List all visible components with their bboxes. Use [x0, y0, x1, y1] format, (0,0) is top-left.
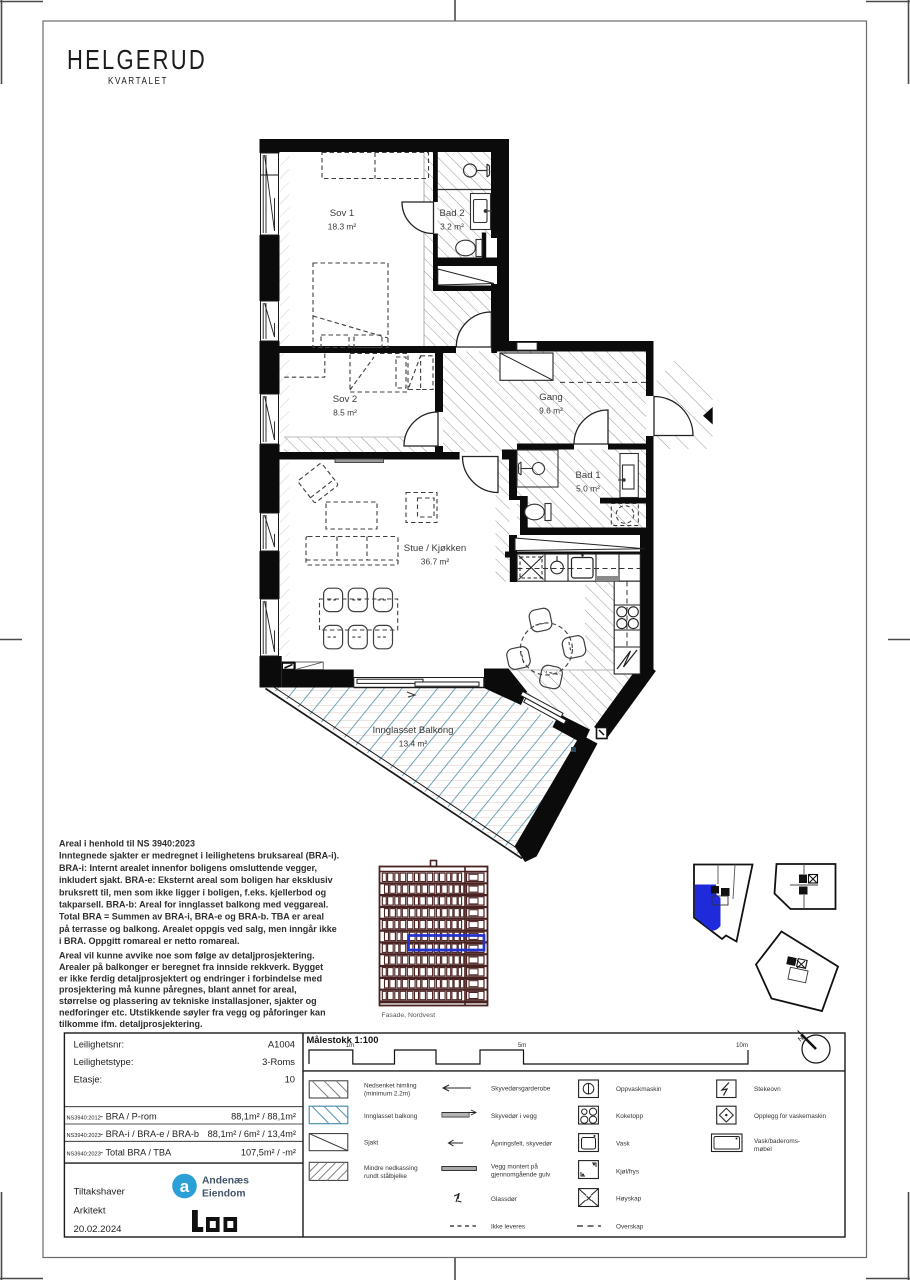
svg-text:takparsell. BRA-b: Areal for i: takparsell. BRA-b: Areal for innglasset …	[59, 900, 328, 910]
svg-text:NS3940:2023: NS3940:2023	[67, 1133, 101, 1139]
svg-text:Målestokk 1:100: Målestokk 1:100	[307, 1034, 379, 1045]
svg-text:10m: 10m	[736, 1042, 748, 1049]
svg-text:Leilighetsnr:: Leilighetsnr:	[74, 1039, 125, 1050]
svg-text:88,1m² / 88,1m²: 88,1m² / 88,1m²	[231, 1112, 296, 1122]
svg-text:Åpningsfelt, skyvedør: Åpningsfelt, skyvedør	[491, 1139, 553, 1148]
svg-text:Sov 2: Sov 2	[333, 394, 358, 405]
svg-text:Stue / Kjøkken: Stue / Kjøkken	[404, 543, 466, 554]
svg-text:Nedsenket himling: Nedsenket himling	[364, 1083, 417, 1090]
svg-text:Bad 2: Bad 2	[439, 208, 464, 219]
svg-text:gjennomgående gulv: gjennomgående gulv	[491, 1171, 551, 1179]
svg-text:Tiltakshaver: Tiltakshaver	[74, 1187, 126, 1198]
svg-text:3-Roms: 3-Roms	[262, 1056, 295, 1067]
svg-text:Innglasset balkong: Innglasset balkong	[364, 1113, 418, 1120]
svg-text:Mindre nedkassing: Mindre nedkassing	[364, 1165, 418, 1172]
svg-text:Ikke leveres: Ikke leveres	[491, 1224, 525, 1231]
svg-text:møbel: møbel	[754, 1146, 772, 1153]
svg-text:HELGERUD: HELGERUD	[67, 44, 207, 75]
svg-text:Oppvaskmaskin: Oppvaskmaskin	[616, 1086, 662, 1093]
svg-text:Skyvedør i vegg: Skyvedør i vegg	[491, 1113, 537, 1120]
svg-text:tilkomme ifm. detaljprosjekter: tilkomme ifm. detaljprosjektering.	[59, 1019, 203, 1029]
svg-text:Gang: Gang	[539, 392, 562, 403]
svg-text:a: a	[180, 1177, 190, 1196]
svg-text:- BRA-i / BRA-e / BRA-b: - BRA-i / BRA-e / BRA-b	[100, 1129, 199, 1139]
svg-text:Høyskap: Høyskap	[616, 1196, 642, 1203]
svg-text:Eiendom: Eiendom	[202, 1189, 245, 1200]
svg-text:nedforinger etc. Utstikkende s: nedforinger etc. Utstikkende søyler fra …	[59, 1008, 326, 1018]
svg-text:Inntegnede sjakter er medregne: Inntegnede sjakter er medregnet i leilig…	[59, 851, 339, 861]
svg-text:KVARTALET: KVARTALET	[108, 75, 168, 87]
svg-text:Vask: Vask	[616, 1141, 631, 1148]
svg-text:5m: 5m	[518, 1042, 527, 1049]
svg-text:Innglasset Balkong: Innglasset Balkong	[372, 725, 453, 736]
svg-text:i BRA. Oppgitt romareal er net: i BRA. Oppgitt romareal er netto romarea…	[59, 936, 240, 946]
svg-text:8.5 m²: 8.5 m²	[333, 408, 357, 418]
svg-text:Areal vil kunne avvike noe som: Areal vil kunne avvike noe som følge av …	[59, 951, 315, 961]
svg-text:bruksrett til, men som ikke li: bruksrett til, men som ikke ligger i bol…	[59, 887, 326, 897]
svg-text:NS3940:2012: NS3940:2012	[67, 1116, 101, 1122]
svg-text:Glassdør: Glassdør	[491, 1196, 518, 1203]
svg-text:18.3 m²: 18.3 m²	[328, 222, 357, 232]
svg-text:Sov 1: Sov 1	[330, 208, 355, 219]
svg-text:Arealer på balkonger er beregn: Arealer på balkonger er beregnet fra inn…	[59, 962, 323, 972]
svg-text:Vegg montert på: Vegg montert på	[491, 1163, 538, 1171]
svg-text:Arkitekt: Arkitekt	[74, 1206, 106, 1217]
svg-text:Skyvedørsgarderobe: Skyvedørsgarderobe	[491, 1086, 551, 1093]
svg-text:20.02.2024: 20.02.2024	[74, 1224, 123, 1235]
svg-text:BRA-i: Internt arealet innenfo: BRA-i: Internt arealet innenfor boligens…	[59, 863, 317, 873]
svg-text:Overskap: Overskap	[616, 1224, 644, 1231]
svg-text:- Total BRA / TBA: - Total BRA / TBA	[100, 1148, 172, 1158]
svg-text:NS3940:2023: NS3940:2023	[67, 1152, 101, 1158]
svg-text:Andenæs: Andenæs	[202, 1176, 249, 1187]
svg-text:107,5m² / -m²: 107,5m² / -m²	[241, 1148, 296, 1158]
svg-text:Vask/baderoms-: Vask/baderoms-	[754, 1138, 800, 1145]
svg-text:Koketopp: Koketopp	[616, 1113, 643, 1120]
svg-text:på terrasse og balkong. Areale: på terrasse og balkong. Arealet oppgis v…	[59, 924, 337, 934]
svg-text:Total BRA = Summen av BRA-i, B: Total BRA = Summen av BRA-i, BRA-e og BR…	[59, 912, 324, 922]
svg-text:A1004: A1004	[268, 1039, 295, 1050]
svg-text:5.0 m²: 5.0 m²	[576, 484, 600, 494]
svg-text:3.2 m²: 3.2 m²	[440, 222, 464, 232]
svg-text:Etasje:: Etasje:	[74, 1074, 103, 1085]
svg-text:36.7 m²: 36.7 m²	[421, 557, 450, 567]
svg-text:(minimum 2.2m): (minimum 2.2m)	[364, 1091, 410, 1098]
svg-text:Bad 1: Bad 1	[575, 470, 600, 481]
svg-text:13.4 m²: 13.4 m²	[399, 739, 428, 749]
svg-text:9.6 m²: 9.6 m²	[539, 406, 563, 416]
svg-text:Areal i henhold til NS 3940:20: Areal i henhold til NS 3940:2023	[59, 839, 195, 849]
svg-text:Leilighetstype:: Leilighetstype:	[74, 1056, 134, 1067]
svg-text:rundt stålbjelke: rundt stålbjelke	[364, 1172, 407, 1180]
svg-text:- BRA / P-rom: - BRA / P-rom	[100, 1112, 157, 1122]
svg-text:88,1m² / 6m² / 13,4m²: 88,1m² / 6m² / 13,4m²	[208, 1129, 296, 1139]
svg-text:1m: 1m	[346, 1042, 355, 1049]
svg-text:10: 10	[285, 1074, 295, 1085]
svg-text:Opplegg for vaskemaskin: Opplegg for vaskemaskin	[754, 1113, 827, 1120]
svg-text:prosjektering må kunne påregne: prosjektering må kunne påregnes, blant a…	[59, 985, 297, 995]
svg-text:Sjakt: Sjakt	[364, 1140, 378, 1147]
svg-text:inkludert sjakt. BRA-e: Ekster: inkludert sjakt. BRA-e: Eksternt areal s…	[59, 875, 333, 885]
svg-text:er ikke ferdig detaljprosjekte: er ikke ferdig detaljprosjektert og endr…	[59, 973, 322, 983]
svg-text:Fasade, Nordvest: Fasade, Nordvest	[382, 1012, 436, 1019]
svg-text:størrelse og plassering av tek: størrelse og plassering av tekniske inst…	[59, 996, 317, 1006]
svg-text:Stekeovn: Stekeovn	[754, 1086, 781, 1093]
svg-text:Kjøl/frys: Kjøl/frys	[616, 1169, 639, 1176]
